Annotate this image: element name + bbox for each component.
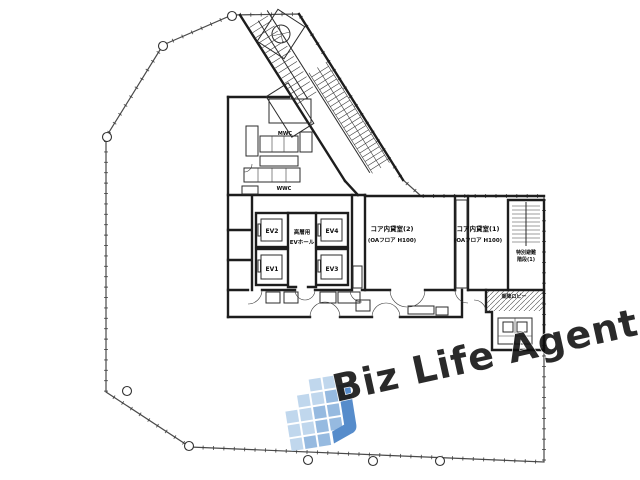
label-mens-wc: MWC	[278, 131, 292, 137]
label-emergency-stair-line2: 階段(1)	[517, 256, 535, 263]
label-core-room2: コア内貸室(2)	[371, 224, 414, 233]
label-core-room1: コア内貸室(1)	[457, 224, 500, 233]
label-ev3: EV3	[326, 266, 339, 273]
floor-plan-drawing: EV2 EV1 EV4 EV3 高層用 EVホール コア内貸室(2) (OAフロ…	[0, 0, 640, 480]
label-womens-wc: WWC	[277, 186, 292, 192]
label-ev-hall-line1: 高層用	[294, 228, 311, 236]
floor-plan-page: EV2 EV1 EV4 EV3 高層用 EVホール コア内貸室(2) (OAフロ…	[0, 0, 640, 480]
label-emergency-stair-line1: 特別避難	[516, 249, 536, 256]
watermark-text: Biz Life Agent	[328, 300, 640, 410]
label-ev-hall-line2: EVホール	[290, 239, 315, 246]
label-ev4: EV4	[326, 228, 339, 235]
label-core-room1-spec: (OAフロア H100)	[454, 237, 503, 244]
label-ev2: EV2	[266, 228, 279, 235]
watermark: Biz Life Agent	[281, 300, 640, 451]
label-core-room2-spec: (OAフロア H100)	[368, 237, 417, 244]
label-ev1: EV1	[266, 266, 279, 273]
service-shafts	[266, 83, 467, 288]
diagonal-stair-wing	[247, 0, 390, 187]
fan-unit	[257, 9, 305, 58]
label-ev-lobby: 乗降ロビー	[501, 293, 526, 300]
elevator-bank	[256, 213, 348, 285]
room-labels: EV2 EV1 EV4 EV3 高層用 EVホール コア内貸室(2) (OAフロ…	[266, 131, 536, 300]
emergency-stair	[512, 202, 540, 246]
corridor-fixtures	[266, 292, 448, 315]
